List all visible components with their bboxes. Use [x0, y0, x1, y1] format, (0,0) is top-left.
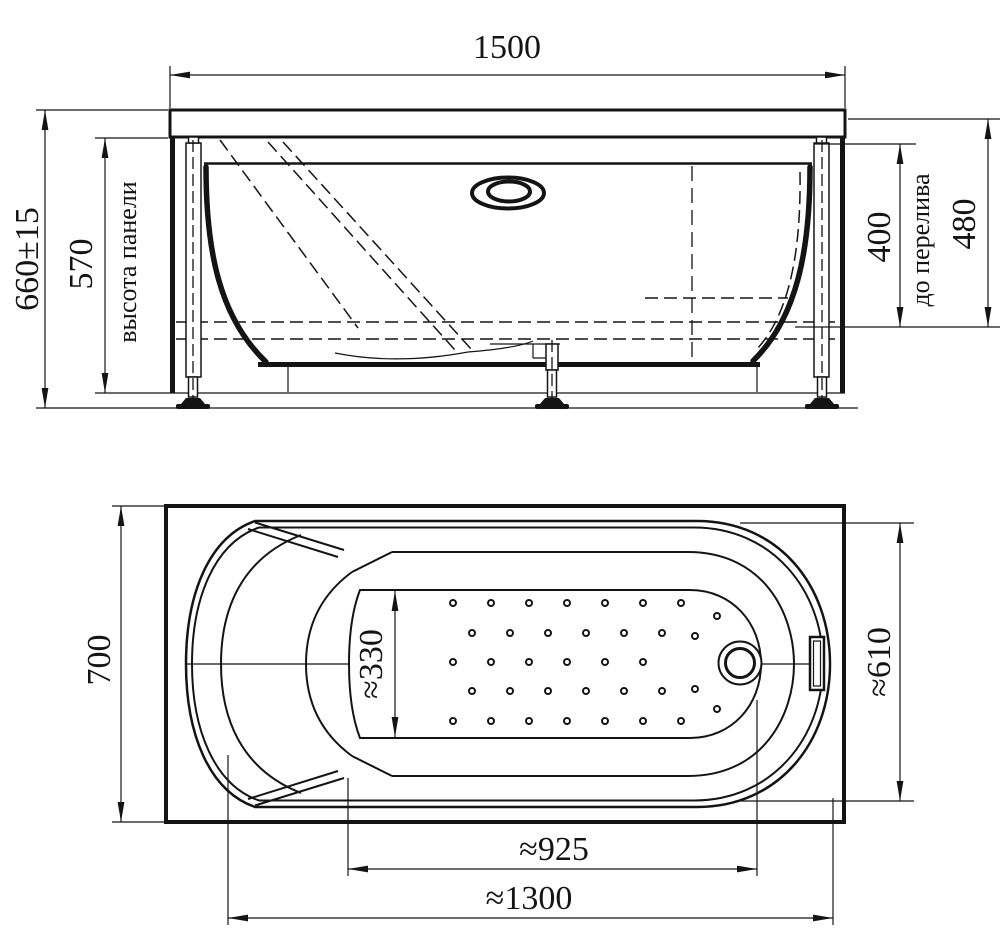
plan-view: 700 ≈330 ≈610 ≈925 ≈1300: [81, 506, 914, 925]
drawing-canvas: 1500 660±15 570 высота панели 400 до пер…: [0, 0, 1000, 931]
overflow-ring: [472, 178, 544, 209]
bathtub-technical-drawing: 1500 660±15 570 высота панели 400 до пер…: [0, 0, 1000, 931]
dim-depth-400: 400: [861, 212, 898, 263]
dim-height-660: 660±15: [9, 207, 46, 311]
dim-right-width-610: ≈610: [861, 627, 898, 697]
dim-length-1300: ≈1300: [486, 880, 573, 917]
label-to-overflow: до перелива: [906, 173, 935, 307]
adjustable-foot-center: [535, 340, 569, 409]
tub-section: [204, 164, 812, 393]
dim-panel-height-570: 570: [63, 239, 100, 290]
front-dimensions: 1500 660±15 570 высота панели 400 до пер…: [9, 29, 1000, 408]
drain-outlet: [719, 642, 762, 685]
hidden-edges: [176, 140, 840, 363]
overflow-fitting: [810, 637, 824, 690]
dim-width-700: 700: [81, 635, 118, 686]
label-panel-height: высота панели: [113, 181, 142, 343]
dim-length-1500: 1500: [473, 29, 541, 66]
dim-floor-length-925: ≈925: [519, 831, 589, 868]
front-elevation-view: 1500 660±15 570 высота панели 400 до пер…: [9, 29, 1000, 409]
dim-floor-width-330: ≈330: [353, 629, 390, 699]
dim-depth-480: 480: [946, 199, 983, 250]
